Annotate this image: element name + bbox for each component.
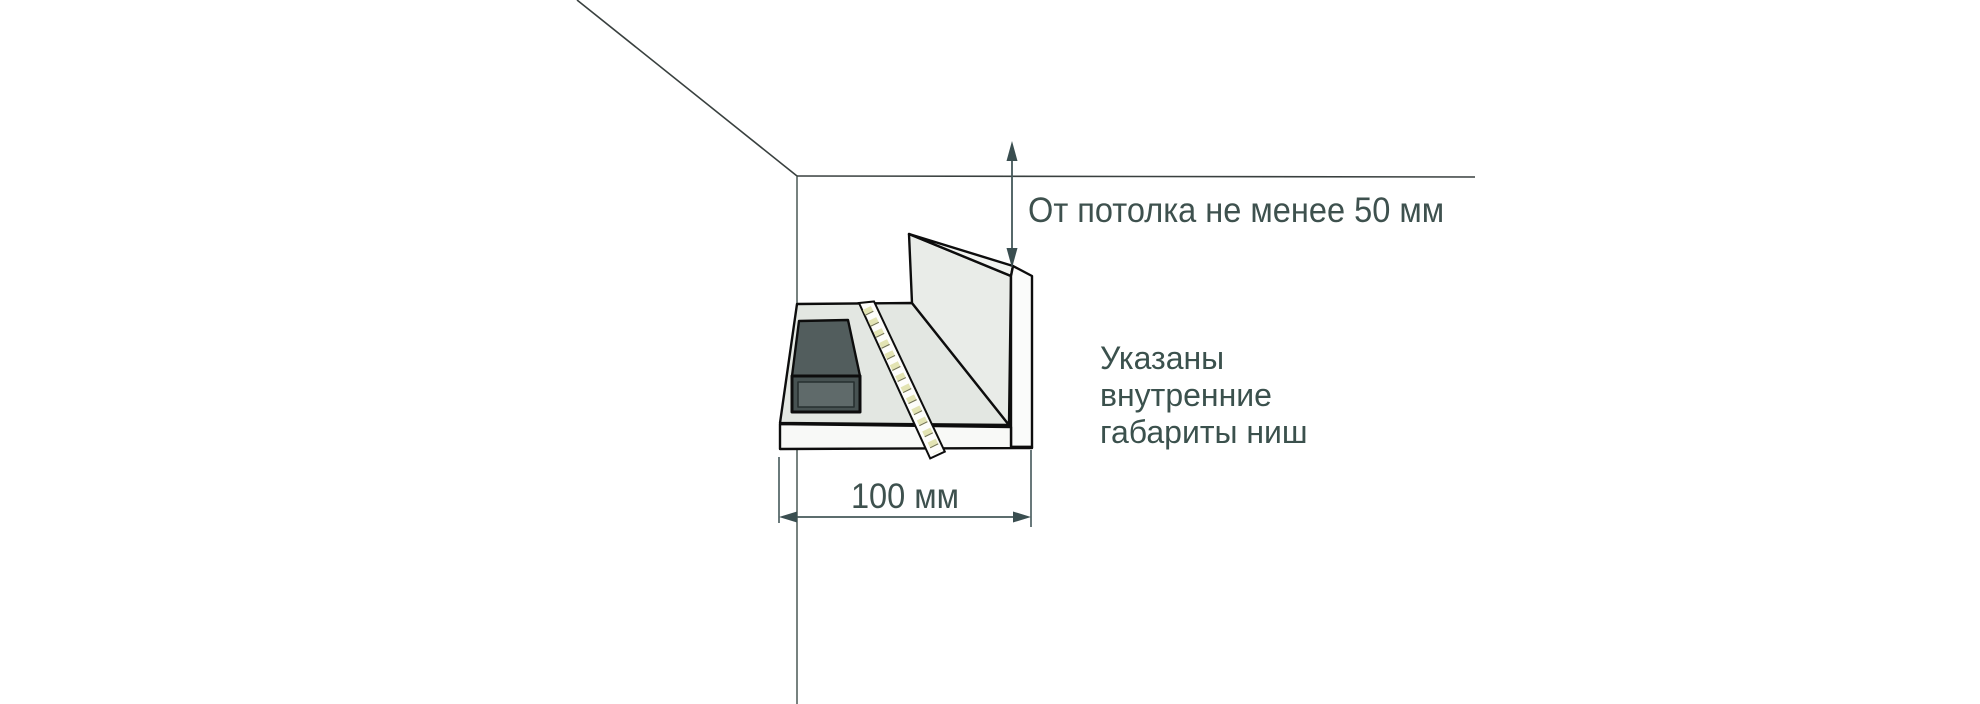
arrow-up-icon bbox=[1007, 141, 1018, 161]
ceiling-corner-diagonal-line bbox=[577, 0, 797, 176]
niche-right-cut-face bbox=[1011, 266, 1032, 447]
diagram-canvas: От потолка не менее 50 мм 100 мм Указаны… bbox=[0, 0, 1980, 704]
niche-drawing bbox=[0, 0, 1980, 704]
power-supply-front-panel bbox=[798, 382, 854, 407]
dimension-label-100mm: 100 мм bbox=[851, 477, 959, 517]
arrow-right-icon bbox=[1013, 512, 1031, 523]
note-internal-dimensions: Указаны внутренние габариты ниш bbox=[1100, 340, 1308, 451]
dimension-vertical-50mm bbox=[1007, 141, 1018, 268]
ceiling-line bbox=[797, 176, 1475, 177]
power-supply-block bbox=[792, 320, 860, 412]
arrow-left-icon bbox=[779, 512, 797, 523]
dimension-label-from-ceiling: От потолка не менее 50 мм bbox=[1028, 191, 1444, 231]
power-supply-top-face bbox=[792, 320, 860, 376]
niche-front-band bbox=[780, 424, 1032, 449]
